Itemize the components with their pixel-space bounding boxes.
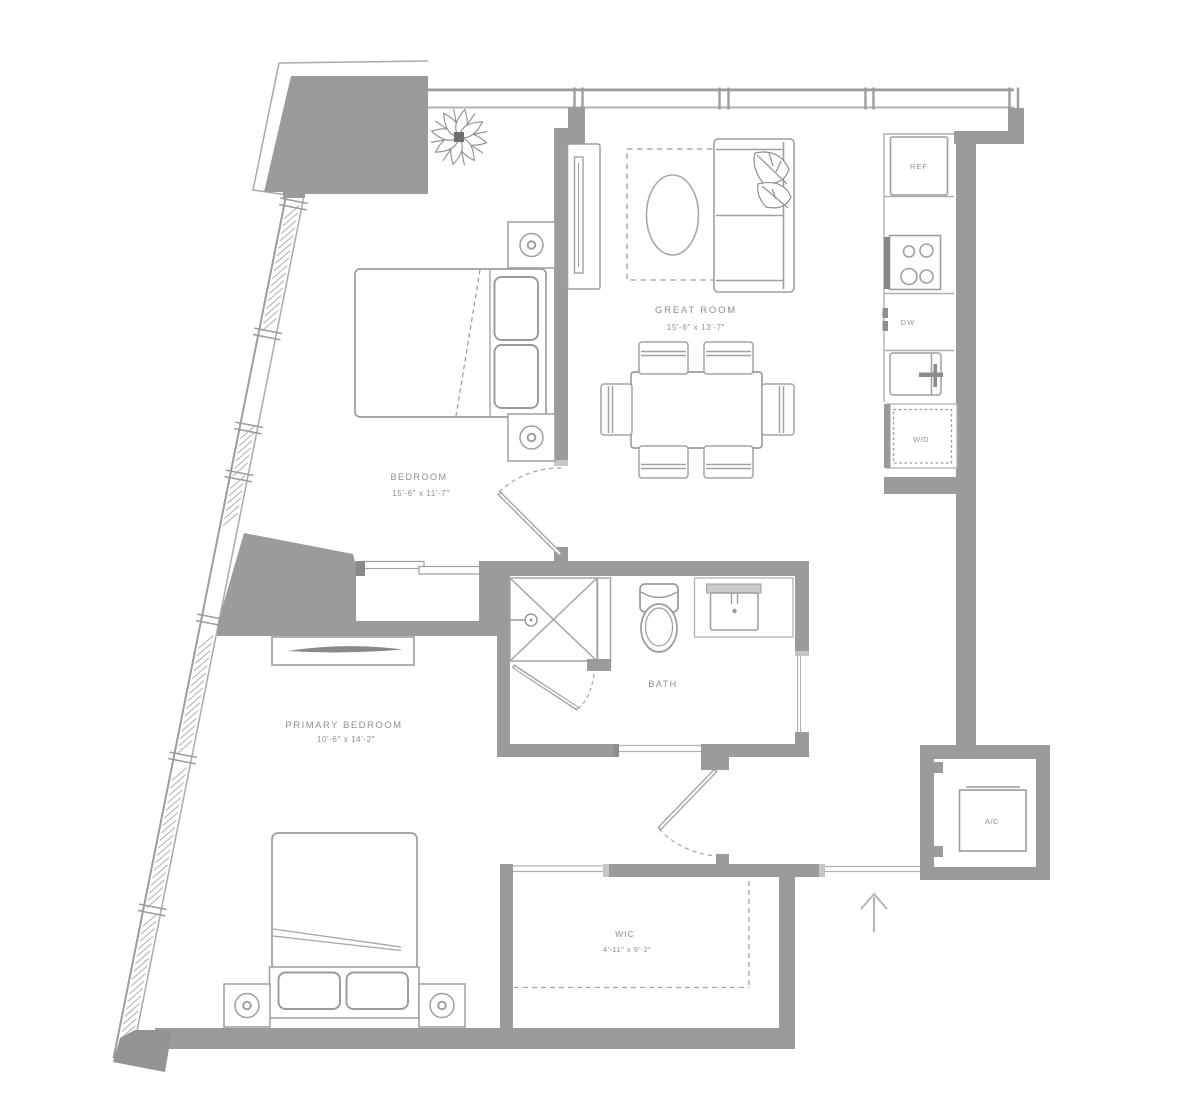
svg-text:BEDROOM: BEDROOM xyxy=(390,472,447,482)
svg-text:BATH: BATH xyxy=(648,679,677,689)
svg-text:15′-6″ x 13′-7″: 15′-6″ x 13′-7″ xyxy=(667,323,725,332)
svg-text:PRIMARY BEDROOM: PRIMARY BEDROOM xyxy=(285,720,402,731)
svg-text:15′-6″ x 11′-7″: 15′-6″ x 11′-7″ xyxy=(392,489,450,498)
svg-text:REF: REF xyxy=(910,162,928,171)
svg-text:GREAT ROOM: GREAT ROOM xyxy=(655,305,737,316)
svg-text:A/C: A/C xyxy=(985,817,999,826)
svg-text:WIC: WIC xyxy=(615,929,635,939)
svg-text:W/D: W/D xyxy=(913,435,929,444)
svg-text:DW: DW xyxy=(901,318,916,327)
svg-text:4′-11″ x 9′-2″: 4′-11″ x 9′-2″ xyxy=(603,945,651,954)
svg-text:10′-6″ x 14′-2″: 10′-6″ x 14′-2″ xyxy=(317,735,375,744)
